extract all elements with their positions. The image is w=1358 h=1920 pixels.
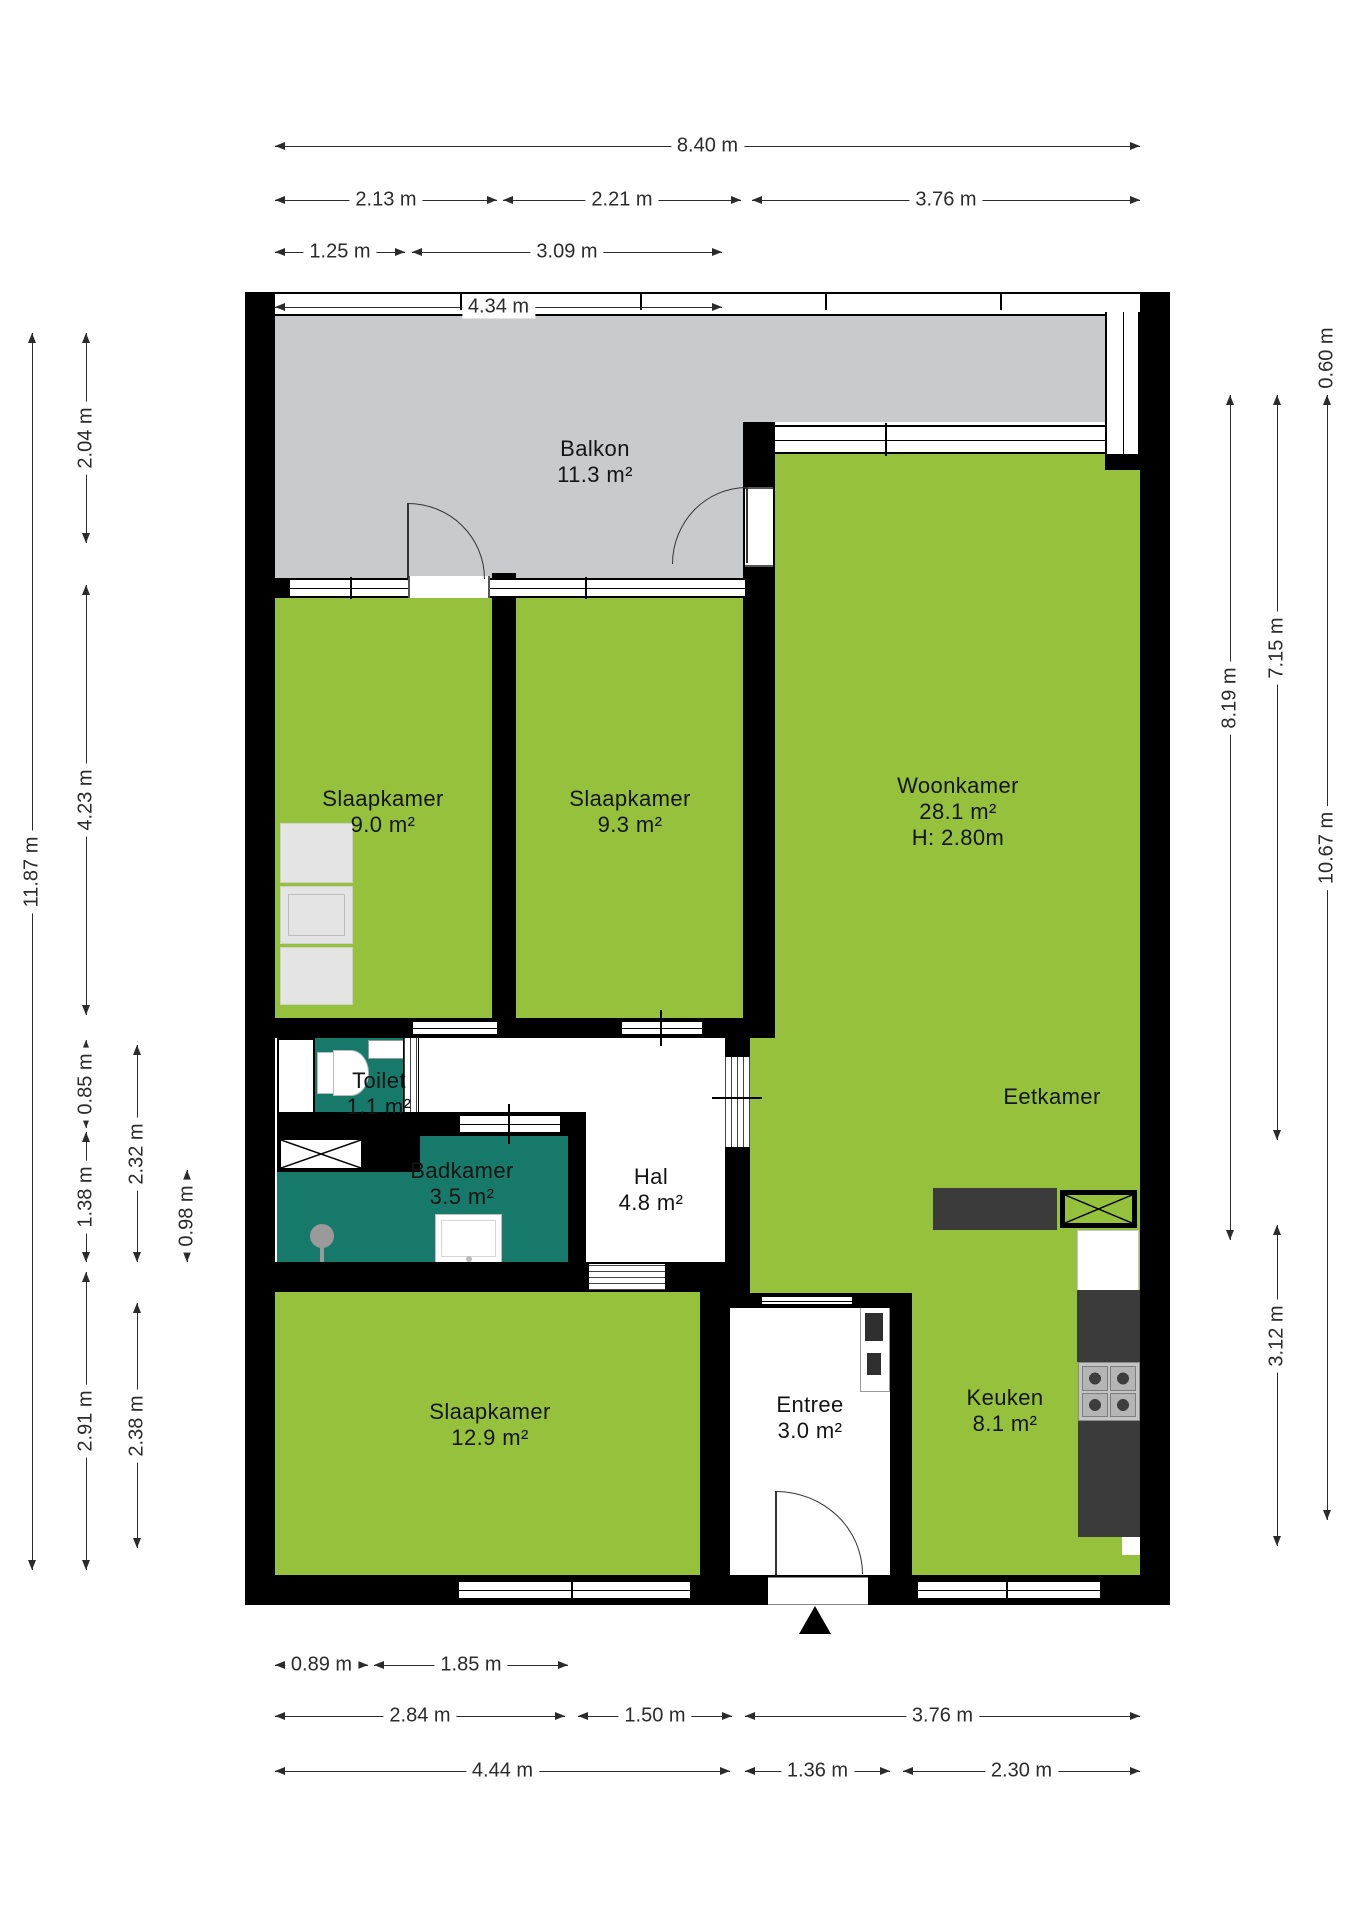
dimension-label: 11.87 m — [20, 830, 45, 913]
label-slaapkamer1: Slaapkamer 9.0 m² — [322, 786, 443, 838]
dimension-label: 0.85 m — [74, 1047, 99, 1120]
dimension-line: 1.36 m — [745, 1761, 890, 1781]
wall-balcony-nub — [1105, 454, 1140, 470]
wardrobe-closet — [280, 823, 353, 1009]
room-woonkamer — [775, 454, 1140, 1038]
dimension-line: 4.23 m — [76, 585, 96, 1015]
window-woonkamer-top — [775, 425, 1105, 454]
dimension-line: 2.04 m — [76, 333, 96, 543]
dimension-line: 11.87 m — [22, 333, 42, 1570]
label-slaapkamer3: Slaapkamer 12.9 m² — [429, 1399, 550, 1451]
dimension-label: 8.40 m — [671, 135, 744, 158]
dimension-line: 2.32 m — [127, 1045, 147, 1262]
label-entree: Entree 3.0 m² — [776, 1392, 843, 1444]
dimension-label: 0.98 m — [175, 1179, 200, 1252]
label-badkamer: Badkamer 3.5 m² — [410, 1158, 513, 1210]
dimension-label: 4.44 m — [466, 1760, 539, 1783]
room-name: Woonkamer — [897, 773, 1019, 799]
dimension-label: 3.12 m — [1265, 1299, 1290, 1372]
room-name: Slaapkamer — [569, 786, 690, 812]
dimension-label: 8.19 m — [1218, 661, 1243, 734]
wardrobe-unit — [280, 947, 353, 1005]
dimension-line: 4.44 m — [275, 1761, 730, 1781]
window-transom-slaapkamer2 — [622, 1020, 702, 1036]
room-area: 9.3 m² — [598, 812, 663, 838]
floor-plan-page: Balkon 11.3 m² Slaapkamer 9.0 m² Slaapka… — [0, 0, 1358, 1920]
burner-icon — [1082, 1366, 1108, 1391]
label-hal: Hal 4.8 m² — [619, 1164, 684, 1216]
washer-unit — [280, 886, 353, 944]
room-name: Balkon — [560, 436, 630, 462]
dimension-label: 1.50 m — [618, 1705, 691, 1728]
dimension-label: 2.91 m — [74, 1384, 99, 1457]
room-name: Entree — [776, 1392, 843, 1418]
dimension-label: 0.89 m — [285, 1654, 358, 1677]
dimension-line: 1.85 m — [374, 1655, 568, 1675]
dimension-line: 2.38 m — [127, 1303, 147, 1548]
room-area: 4.8 m² — [619, 1190, 684, 1216]
dimension-line: 0.98 m — [177, 1170, 197, 1262]
dimension-label: 2.13 m — [349, 189, 422, 212]
dimension-label: 10.67 m — [1315, 805, 1340, 889]
room-area: 3.5 m² — [430, 1184, 495, 1210]
dimension-line: 3.76 m — [752, 190, 1140, 210]
dimension-line: 4.34 m — [275, 297, 722, 317]
room-name: Slaapkamer — [429, 1399, 550, 1425]
room-name: Slaapkamer — [322, 786, 443, 812]
burner-icon — [1110, 1366, 1136, 1391]
dimension-label: 2.32 m — [125, 1117, 150, 1190]
room-height: H: 2.80m — [912, 825, 1004, 851]
kitchen-counter-notch — [1122, 1537, 1140, 1555]
balcony-door-bedroom-gap — [408, 576, 490, 598]
dimension-line: 1.38 m — [76, 1132, 96, 1262]
window-keuken-bottom — [918, 1580, 1100, 1600]
wall-badkamer-right — [568, 1112, 586, 1264]
dimension-line: 1.25 m — [275, 242, 405, 262]
room-balkon-floor-deep — [275, 312, 745, 578]
window-balcony-right — [1105, 312, 1140, 454]
dimension-line: 10.67 m — [1317, 395, 1337, 1520]
duct-shaft-kitchen — [1060, 1190, 1137, 1228]
room-area: 3.0 m² — [778, 1418, 843, 1444]
dimension-label: 2.30 m — [985, 1760, 1058, 1783]
window-entree-top — [762, 1295, 852, 1306]
room-name: Toilet — [352, 1068, 406, 1094]
kitchen-peninsula-counter — [933, 1188, 1057, 1230]
label-toilet: Toilet 1.1 m² — [347, 1068, 412, 1120]
dimension-label: 2.84 m — [383, 1705, 456, 1728]
dimension-label: 4.23 m — [74, 763, 99, 836]
wall-bedroom-partition — [492, 573, 516, 1018]
meter-cupboard — [860, 1306, 890, 1392]
dimension-line: 3.12 m — [1267, 1225, 1287, 1546]
dimension-label: 3.09 m — [530, 241, 603, 264]
room-name: Badkamer — [410, 1158, 513, 1184]
dimension-label: 7.15 m — [1265, 611, 1290, 684]
wall-hal-bottom — [245, 1262, 750, 1292]
door-hal-slaapkamer3 — [587, 1264, 667, 1290]
dimension-label: 3.76 m — [906, 1705, 979, 1728]
duct-shaft-bathroom — [277, 1136, 365, 1172]
door-tick — [712, 1097, 762, 1099]
dimension-line: 8.19 m — [1220, 395, 1240, 1240]
room-area: 9.0 m² — [351, 812, 416, 838]
room-area: 8.1 m² — [973, 1411, 1038, 1437]
dimension-label: 1.36 m — [781, 1760, 854, 1783]
room-name: Eetkamer — [1003, 1084, 1100, 1110]
window-transom-badkamer — [460, 1114, 560, 1134]
window-bedrooms-balcony — [290, 578, 745, 598]
dimension-label: 1.25 m — [303, 241, 376, 264]
dimension-label: 2.21 m — [585, 189, 658, 212]
window-slaapkamer3-bottom — [459, 1580, 690, 1600]
front-door-gap — [768, 1577, 868, 1605]
dimension-line: 3.09 m — [412, 242, 722, 262]
fridge — [1077, 1230, 1139, 1292]
label-woonkamer: Woonkamer 28.1 m² H: 2.80m — [897, 773, 1019, 851]
wall-exterior-left — [245, 292, 275, 1605]
dimension-line: 3.76 m — [745, 1706, 1140, 1726]
dimension-line: 7.15 m — [1267, 395, 1287, 1140]
door-hal-woonkamer — [725, 1055, 750, 1149]
dimension-label: 1.38 m — [74, 1160, 99, 1233]
dimension-line: 1.50 m — [578, 1706, 732, 1726]
burner-icon — [1082, 1393, 1108, 1418]
dimension-label: 2.38 m — [125, 1389, 150, 1462]
washbasin — [435, 1214, 502, 1266]
dimension-label: 0.60 m — [1315, 321, 1340, 394]
kitchen-counter-lower — [1078, 1421, 1140, 1537]
burner-icon — [1110, 1393, 1136, 1418]
room-name: Hal — [634, 1164, 668, 1190]
label-slaapkamer2: Slaapkamer 9.3 m² — [569, 786, 690, 838]
stove-cooktop — [1078, 1362, 1140, 1421]
dimension-label: 3.76 m — [909, 189, 982, 212]
room-area: 1.1 m² — [347, 1094, 412, 1120]
room-area: 28.1 m² — [919, 799, 996, 825]
window-transom-slaapkamer1 — [413, 1020, 497, 1036]
dimension-line: 0.89 m — [275, 1655, 368, 1675]
wall-slaapkamer3-right — [700, 1292, 730, 1605]
dimension-line: 2.84 m — [275, 1706, 565, 1726]
dimension-label: 2.04 m — [74, 401, 99, 474]
room-area: 11.3 m² — [557, 462, 633, 488]
kitchen-counter-upper — [1077, 1290, 1140, 1362]
room-name: Keuken — [966, 1385, 1043, 1411]
shower-head-icon — [310, 1224, 334, 1248]
dimension-line: 2.91 m — [76, 1272, 96, 1570]
shaft-next-to-toilet — [277, 1038, 315, 1114]
dimension-line: 8.40 m — [275, 136, 1140, 156]
dimension-label: 4.34 m — [462, 296, 535, 319]
label-keuken: Keuken 8.1 m² — [966, 1385, 1043, 1437]
wall-bedroom-window-nub — [275, 578, 290, 598]
dimension-line: 0.60 m — [1317, 326, 1337, 390]
wall-entree-right — [890, 1293, 912, 1577]
dimension-line: 2.30 m — [903, 1761, 1140, 1781]
dimension-line: 2.13 m — [275, 190, 497, 210]
dimension-line: 0.85 m — [76, 1040, 96, 1128]
entrance-arrow-icon — [799, 1606, 831, 1634]
dimension-label: 1.85 m — [434, 1654, 507, 1677]
room-area: 12.9 m² — [451, 1425, 528, 1451]
label-balkon: Balkon 11.3 m² — [557, 436, 633, 488]
toilet-sink — [368, 1040, 404, 1059]
wall-exterior-right — [1140, 292, 1170, 1605]
label-eetkamer: Eetkamer — [1003, 1084, 1100, 1110]
room-badkamer-shower-zone — [277, 1157, 420, 1264]
balcony-door-woonkamer-gap — [745, 487, 773, 567]
dimension-line: 2.21 m — [503, 190, 741, 210]
